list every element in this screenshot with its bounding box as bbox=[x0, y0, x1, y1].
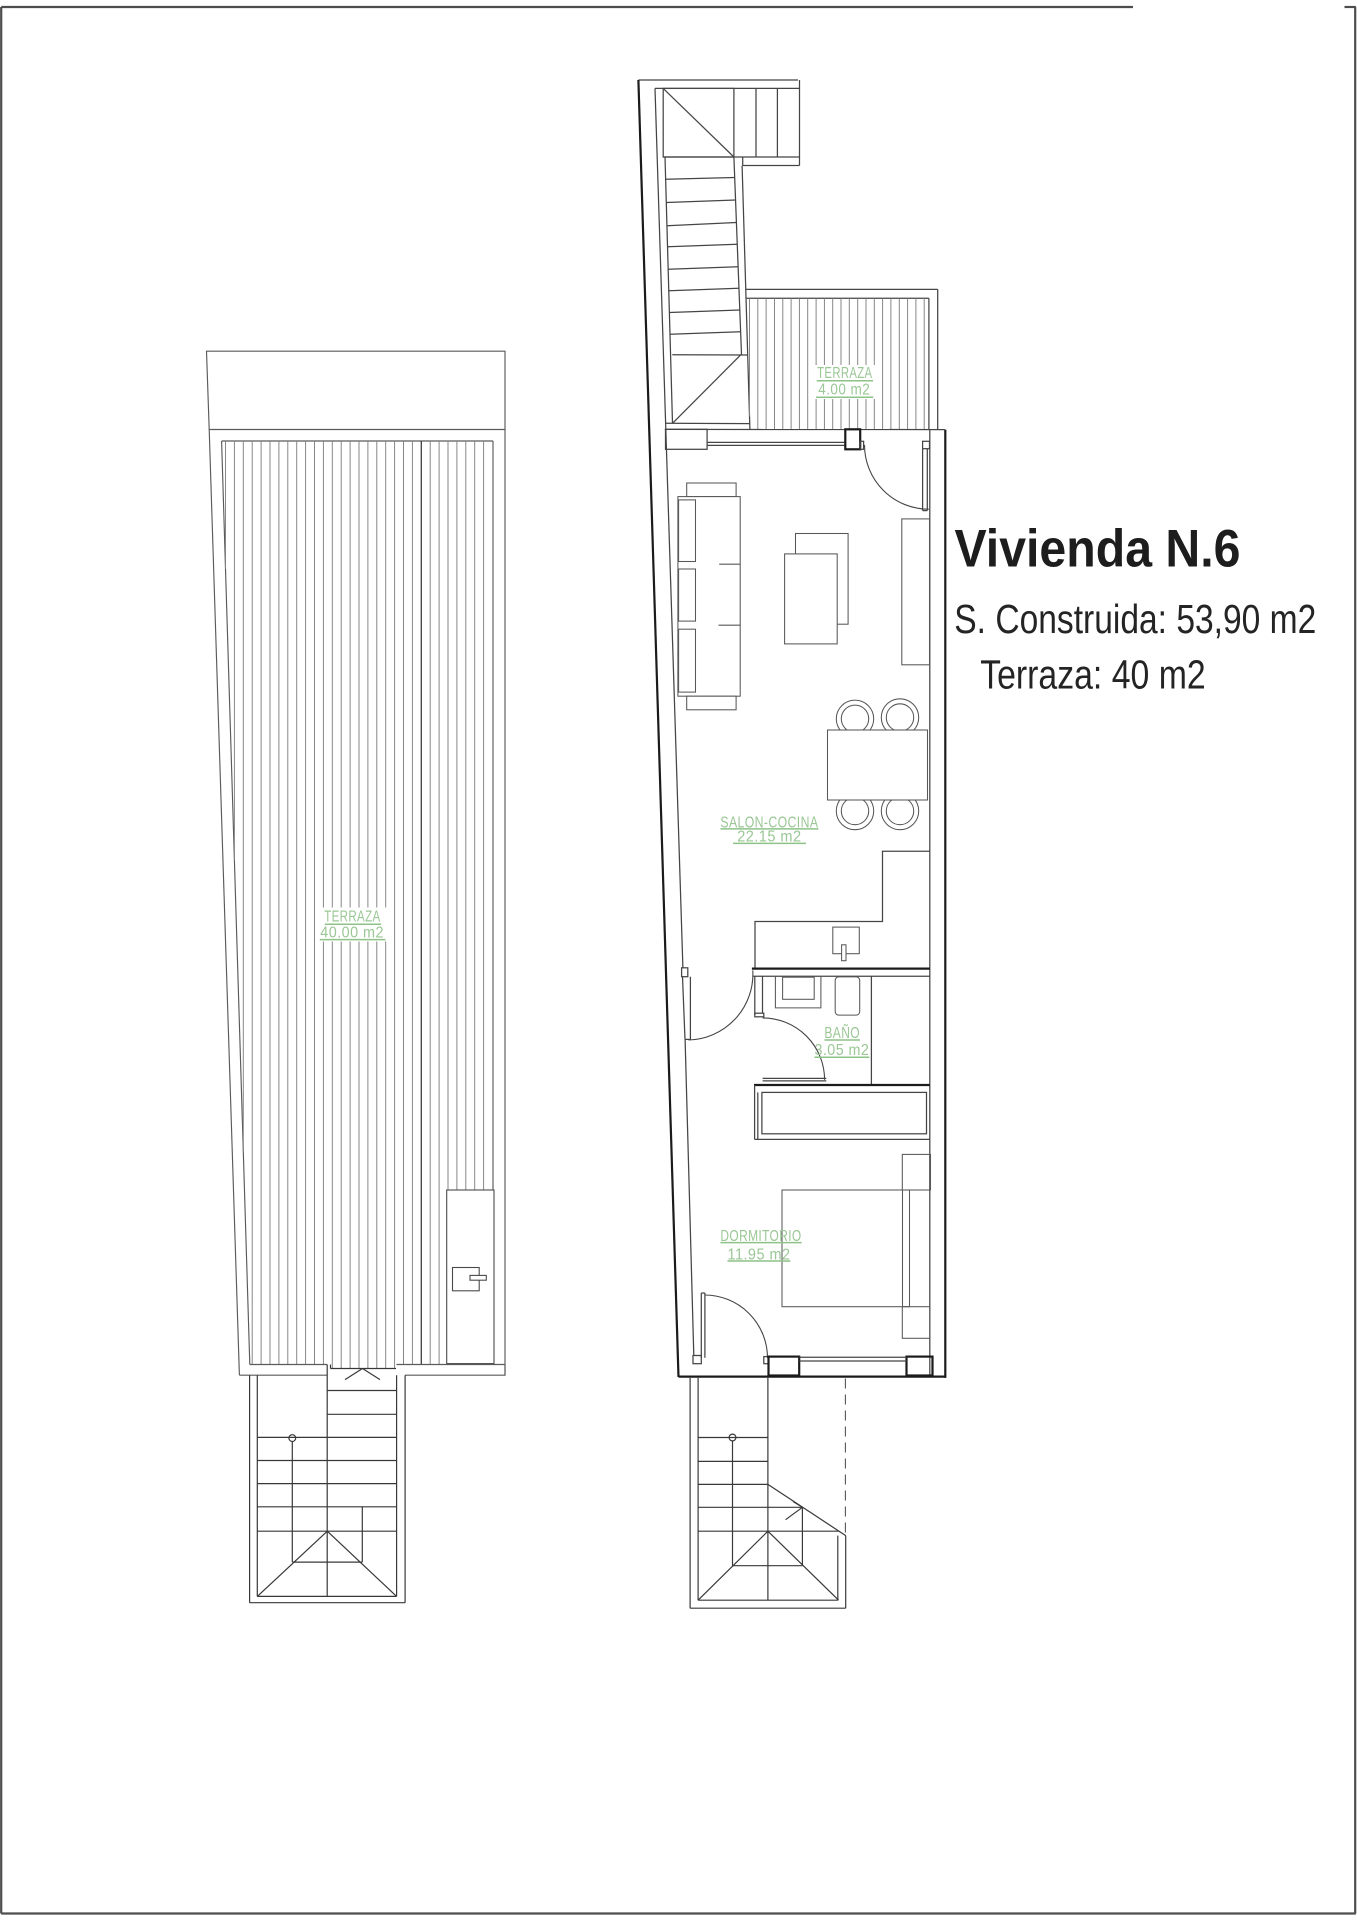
svg-text:BAÑO: BAÑO bbox=[824, 1022, 860, 1042]
svg-text:Terraza: 40 m2: Terraza: 40 m2 bbox=[980, 652, 1205, 698]
svg-text:S. Construida: 53,90 m2: S. Construida: 53,90 m2 bbox=[954, 596, 1316, 642]
svg-text:4.00 m2: 4.00 m2 bbox=[818, 382, 870, 399]
svg-text:Vivienda N.6: Vivienda N.6 bbox=[955, 520, 1241, 579]
svg-text:TERRAZA: TERRAZA bbox=[324, 908, 380, 925]
svg-text:TERRAZA: TERRAZA bbox=[817, 365, 872, 382]
